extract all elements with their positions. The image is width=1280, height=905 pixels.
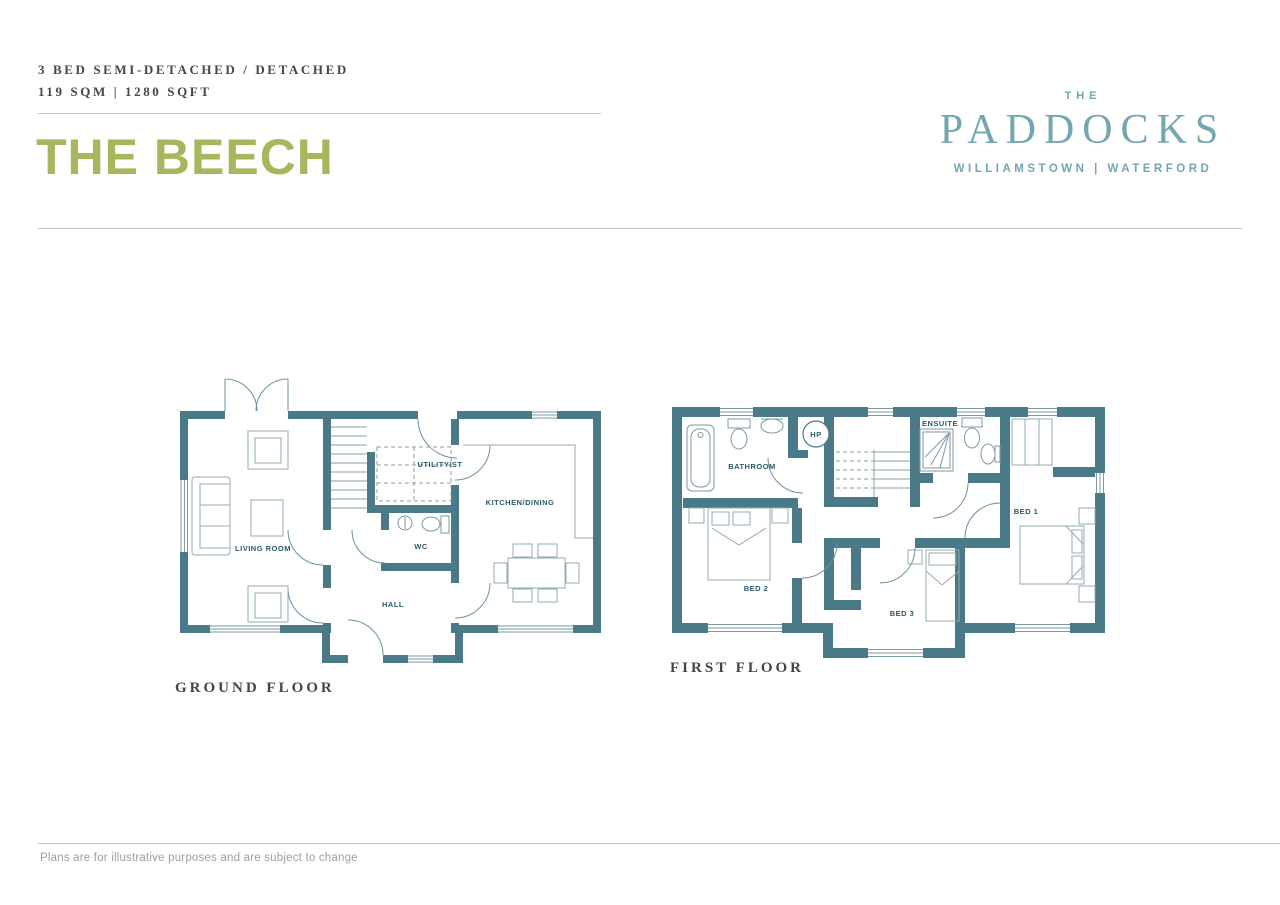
first-floor-staircase bbox=[836, 450, 910, 497]
bed3-furniture bbox=[908, 550, 959, 621]
ground-floor-plan: LIVING ROOM UTILITY/ST WC HALL KITCHEN/D… bbox=[175, 373, 610, 673]
bed2-furniture bbox=[689, 508, 788, 580]
french-doors bbox=[225, 379, 288, 411]
ground-floor-walls bbox=[180, 411, 601, 663]
page-title: THE BEECH bbox=[36, 128, 334, 186]
brand-name: PADDOCKS bbox=[928, 106, 1238, 154]
hall-label: HALL bbox=[382, 600, 404, 609]
bathroom-label: BATHROOM bbox=[728, 462, 776, 471]
utility-storage bbox=[377, 447, 451, 501]
bed1-label: BED 1 bbox=[1014, 507, 1039, 516]
staircase bbox=[331, 427, 367, 508]
wc-fixtures bbox=[398, 516, 449, 533]
wc-label: WC bbox=[414, 542, 428, 551]
hp-label: HP bbox=[810, 430, 821, 439]
living-room-label: LIVING ROOM bbox=[235, 544, 291, 553]
brochure-page: { "header": { "spec_line1": "3 BED SEMI-… bbox=[0, 0, 1280, 905]
brand-location: WILLIAMSTOWN | WATERFORD bbox=[928, 163, 1238, 175]
bed3-label: BED 3 bbox=[890, 609, 915, 618]
kitchen-furniture bbox=[463, 445, 593, 602]
first-floor-caption: FIRST FLOOR bbox=[670, 660, 804, 677]
brand-prefix: THE bbox=[928, 90, 1238, 102]
footer-divider bbox=[38, 843, 1280, 844]
brand-logo: THE PADDOCKS WILLIAMSTOWN | WATERFORD bbox=[928, 90, 1238, 175]
first-floor-doors bbox=[768, 458, 1000, 583]
kitchen-dining-label: KITCHEN/DINING bbox=[486, 498, 555, 507]
footer-disclaimer: Plans are for illustrative purposes and … bbox=[40, 852, 358, 864]
ground-floor-caption: GROUND FLOOR bbox=[175, 680, 335, 697]
first-floor-plan: BATHROOM HP ENSUITE BED 1 BED 2 BED 3 bbox=[668, 395, 1113, 665]
header-divider-top bbox=[38, 113, 601, 114]
ensuite-label: ENSUITE bbox=[922, 419, 958, 428]
bathroom-fixtures bbox=[687, 419, 783, 491]
header-divider-bottom bbox=[38, 228, 1242, 229]
living-room-furniture bbox=[192, 431, 288, 622]
ground-floor-doors bbox=[288, 419, 490, 655]
utility-label: UTILITY/ST bbox=[418, 460, 463, 469]
first-floor-windows bbox=[708, 409, 1104, 657]
spec-line-1: 3 BED SEMI-DETACHED / DETACHED bbox=[38, 62, 349, 78]
bed2-label: BED 2 bbox=[744, 584, 769, 593]
spec-line-2: 119 SQM | 1280 SQFT bbox=[38, 84, 212, 100]
